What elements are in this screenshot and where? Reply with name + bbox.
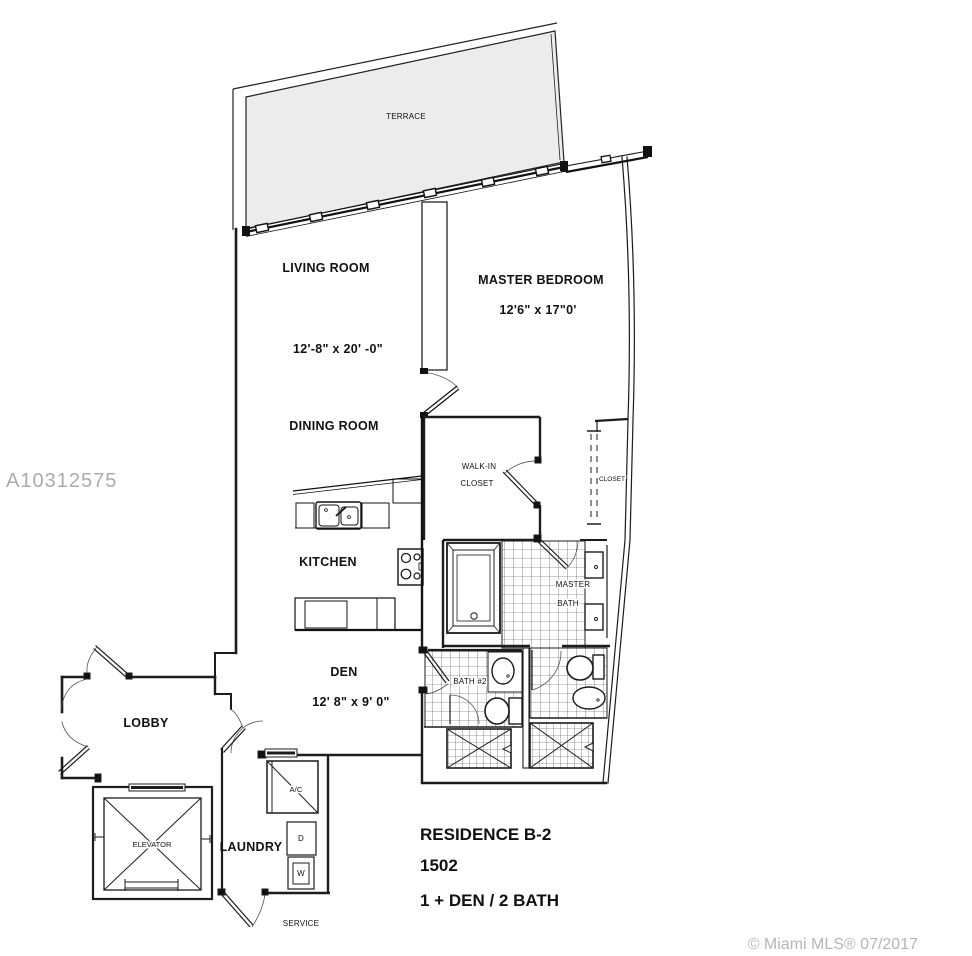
residence-title: RESIDENCE B-2 [420,825,551,844]
lobby-label: LOBBY [123,716,169,730]
ac-label: A/C [289,785,302,794]
kitchen-label: KITCHEN [299,555,357,569]
laundry-label: LAUNDRY [220,840,283,854]
bedroom-wall-and-door [420,202,459,418]
living-room-dims: 12'-8" x 20' -0" [293,342,383,356]
master-bedroom-dims: 12'6" x 17"0' [499,303,576,317]
bath2-shower-icon [447,729,511,768]
unit-number: 1502 [420,856,458,875]
master-bath-sinks-icon [585,545,607,638]
master-bath-label-1: MASTER [556,580,591,589]
dining-room-label: DINING ROOM [289,419,378,433]
copyright-notice: © Miami MLS® 07/2017 [748,936,918,953]
bath2-sink-icon [492,658,514,684]
room-master-bath [443,535,610,648]
service-label: SERVICE [283,919,319,928]
terrace-label: TERRACE [386,112,426,121]
floor-plan-page: TERRACE LIVING ROOM 12'-8" x 20' -0" MAS… [0,0,972,956]
room-laundry [218,748,330,927]
floor-plan-drawing: TERRACE LIVING ROOM 12'-8" x 20' -0" MAS… [0,0,972,956]
room-lobby [59,646,245,782]
room-den [231,721,422,758]
room-water-closet [523,648,607,768]
bath2-label: BATH #2 [453,677,487,686]
washer-label: W [297,869,305,878]
elevator-label: ELEVATOR [133,840,172,849]
wc-shower-icon [530,723,593,768]
living-room-label: LIVING ROOM [282,261,369,275]
layout-title: 1 + DEN / 2 BATH [420,891,559,910]
bath2-toilet-icon [485,698,522,724]
wc-sink-icon [573,687,605,709]
stove-icon [398,549,423,585]
mls-watermark: A10312575 [6,470,117,492]
room-closet [587,419,628,524]
master-bedroom-label: MASTER BEDROOM [478,273,604,287]
den-label: DEN [330,665,357,679]
den-dims: 12' 8" x 9' 0" [312,695,390,709]
kitchen-sink-icon [316,502,361,529]
bathtub-icon [447,543,500,633]
walk-in-closet-label-2: CLOSET [460,479,493,488]
room-bath2 [419,630,522,783]
room-terrace [233,23,564,230]
wc-toilet-icon [567,655,604,680]
master-bath-label-2: BATH [557,599,579,608]
ac-closet [265,749,318,813]
dryer-label: D [298,834,304,843]
closet-label: CLOSET [599,476,625,483]
walk-in-closet-label-1: WALK-IN [462,462,496,471]
room-kitchen [293,417,423,630]
